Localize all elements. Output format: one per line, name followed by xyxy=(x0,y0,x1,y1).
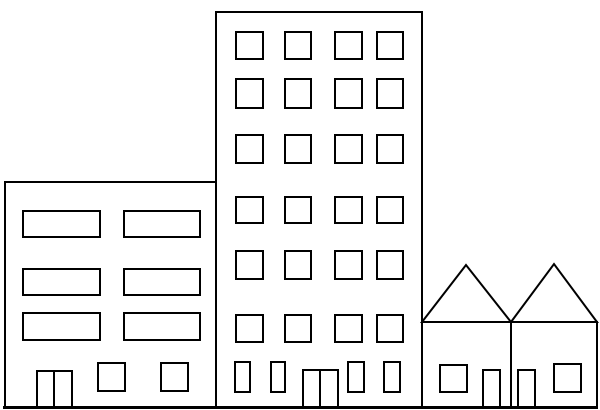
center-tower-building-window-9 xyxy=(236,135,263,163)
center-tower-building-window-7 xyxy=(335,79,362,108)
center-tower-building-window-2 xyxy=(285,32,311,59)
left-apartment-building-window-4 xyxy=(124,269,200,295)
left-apartment-building-window-8 xyxy=(161,363,188,391)
left-apartment-building-window-3 xyxy=(23,269,100,295)
center-tower-building-window-21 xyxy=(236,315,263,342)
center-tower-building-window-24 xyxy=(377,315,403,342)
city-svg xyxy=(0,0,600,410)
center-tower-building-window-19 xyxy=(335,251,362,279)
left-apartment-building-window-7 xyxy=(98,363,125,391)
center-tower-building-window-20 xyxy=(377,251,403,279)
right-house-2-window-1 xyxy=(554,364,581,392)
center-tower-building-window-3 xyxy=(335,32,362,59)
left-apartment-building-window-1 xyxy=(23,211,100,237)
center-tower-building-window-25 xyxy=(235,362,250,392)
center-tower-building-window-8 xyxy=(377,79,403,108)
left-apartment-building-window-6 xyxy=(124,313,200,340)
center-tower-building-window-27 xyxy=(348,362,364,392)
center-tower-building-window-14 xyxy=(285,197,311,223)
left-apartment-building-window-2 xyxy=(124,211,200,237)
right-house-1-roof xyxy=(422,265,511,322)
center-tower-building-window-17 xyxy=(236,251,263,279)
center-tower-building-window-15 xyxy=(335,197,362,223)
right-house-2-door-1 xyxy=(518,370,535,408)
center-tower-building-window-1 xyxy=(236,32,263,59)
center-tower-building-window-18 xyxy=(285,251,311,279)
center-tower-building-window-12 xyxy=(377,135,403,163)
center-tower-building-window-6 xyxy=(285,79,311,108)
right-house-1-door-1 xyxy=(483,370,500,408)
center-tower-building-window-5 xyxy=(236,79,263,108)
center-tower-building-window-11 xyxy=(335,135,362,163)
center-tower-building-window-13 xyxy=(236,197,263,223)
left-apartment-building-window-5 xyxy=(23,313,100,340)
city-illustration xyxy=(0,0,600,410)
right-house-1-window-1 xyxy=(440,365,467,392)
center-tower-building-window-26 xyxy=(271,362,285,392)
right-house-2-roof xyxy=(511,264,597,322)
center-tower-building-window-16 xyxy=(377,197,403,223)
center-tower-building-window-4 xyxy=(377,32,403,59)
center-tower-building-window-28 xyxy=(384,362,400,392)
center-tower-building-window-23 xyxy=(335,315,362,342)
center-tower-building-window-10 xyxy=(285,135,311,163)
center-tower-building-window-22 xyxy=(285,315,311,342)
